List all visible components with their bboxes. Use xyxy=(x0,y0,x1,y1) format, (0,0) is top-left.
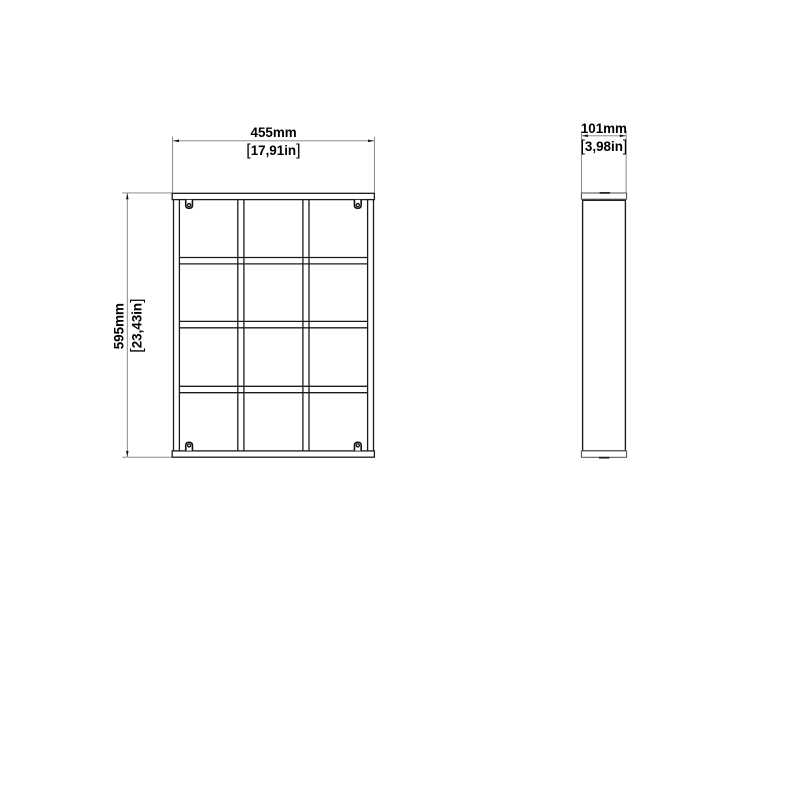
svg-text:[3,98in]: [3,98in] xyxy=(580,138,627,155)
svg-text:595mm: 595mm xyxy=(112,303,127,349)
svg-text:101mm: 101mm xyxy=(581,121,627,136)
svg-text:[17,91in]: [17,91in] xyxy=(246,142,300,159)
svg-text:455mm: 455mm xyxy=(251,125,297,140)
svg-text:[23,43in]: [23,43in] xyxy=(128,298,145,352)
